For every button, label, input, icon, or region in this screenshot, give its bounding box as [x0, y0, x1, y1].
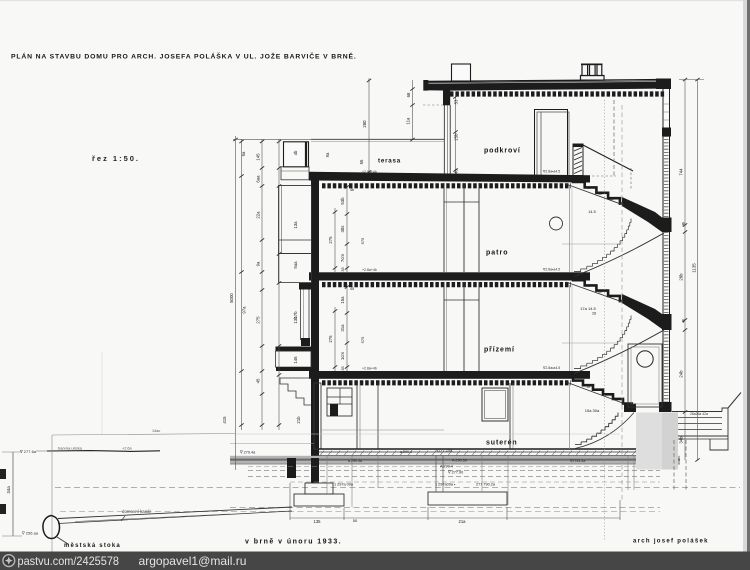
svg-text:∇2.8a•a4.5: ∇2.8a•a4.5: [542, 366, 560, 370]
svg-text:+2.8a+4b: +2.8a+4b: [362, 367, 377, 371]
svg-text:a 290.4: a 290.4: [400, 450, 412, 454]
svg-text:415: 415: [222, 416, 227, 424]
svg-text:1cm: 1cm: [340, 352, 345, 361]
svg-text:domovní kanál: domovní kanál: [122, 509, 151, 514]
svg-text:275: 275: [328, 236, 333, 244]
svg-text:A 290.4: A 290.4: [440, 465, 453, 469]
svg-text:1135: 1135: [692, 263, 697, 273]
svg-text:7cm: 7cm: [340, 254, 345, 263]
svg-text:45: 45: [256, 378, 261, 383]
svg-text:4b: 4b: [454, 169, 459, 174]
svg-text:+2.8a+4b: +2.8a+4b: [362, 268, 377, 272]
svg-text:13a: 13a: [293, 221, 298, 229]
svg-text:přízemí: přízemí: [484, 347, 515, 354]
svg-text:5000: 5000: [229, 293, 234, 303]
svg-text:A 290.50: A 290.50: [452, 459, 467, 463]
svg-text:∇277.20a: ∇277.20a: [435, 449, 453, 453]
svg-text:97a: 97a: [242, 306, 247, 314]
svg-text:PLÁN NA STAVBU DOMU PRO ARCH.: PLÁN NA STAVBU DOMU PRO ARCH. JOSEFA POL…: [11, 52, 357, 61]
svg-text:řez 1:50.: řez 1:50.: [92, 154, 140, 163]
svg-text:34a: 34a: [6, 486, 11, 494]
svg-text:68: 68: [406, 92, 411, 97]
svg-text:9a: 9a: [256, 261, 261, 266]
svg-text:a 290.4a: a 290.4a: [348, 459, 362, 463]
svg-text:terasa: terasa: [378, 158, 401, 165]
svg-text:744: 744: [679, 168, 684, 176]
svg-text:∇2.8a•a4.5: ∇2.8a•a4.5: [542, 170, 560, 174]
svg-text:50: 50: [353, 518, 358, 523]
svg-text:∇2.8a•a4.5: ∇2.8a•a4.5: [542, 268, 560, 272]
svg-text:arch josef polášek: arch josef polášek: [633, 539, 709, 545]
svg-text:14.5: 14.5: [588, 210, 595, 214]
svg-text:4b: 4b: [681, 318, 686, 323]
svg-text:9a: 9a: [241, 151, 246, 156]
svg-text:4b: 4b: [586, 186, 590, 190]
svg-text:1 297a 09a: 1 297a 09a: [334, 483, 354, 487]
svg-text:135: 135: [314, 519, 322, 524]
svg-text:pastvu.com/2425578: pastvu.com/2425578: [18, 554, 120, 568]
svg-text:146: 146: [293, 356, 298, 364]
svg-text:17a 14.5: 17a 14.5: [580, 306, 596, 311]
svg-text:patro: patro: [486, 250, 509, 257]
svg-text:barvna ulícka: barvna ulícka: [58, 446, 83, 451]
svg-text:11a: 11a: [406, 117, 411, 124]
svg-text:31a: 31a: [340, 324, 345, 332]
svg-text:∇ 277.6a: ∇ 277.6a: [19, 449, 37, 454]
svg-text:35: 35: [341, 267, 345, 271]
svg-text:v brně v únoru 1933.: v brně v únoru 1933.: [245, 539, 342, 546]
svg-text:6aa: 6aa: [256, 175, 261, 183]
svg-text:575: 575: [360, 336, 365, 343]
svg-text:277 790.2a: 277 790.2a: [476, 483, 496, 487]
svg-text:4b: 4b: [598, 290, 602, 294]
svg-text:575: 575: [360, 237, 365, 244]
svg-text:25b: 25b: [454, 133, 459, 141]
svg-text:24b: 24b: [679, 370, 684, 378]
svg-text:275: 275: [328, 335, 333, 343]
svg-text:∇2744.4a: ∇2744.4a: [569, 459, 585, 463]
svg-text:9a: 9a: [325, 152, 330, 157]
svg-text:4b: 4b: [293, 150, 298, 155]
svg-text:21a: 21a: [459, 519, 467, 524]
svg-text:1b: 1b: [610, 197, 614, 201]
svg-text:145: 145: [256, 153, 261, 161]
svg-text:53b: 53b: [340, 197, 345, 205]
svg-text:9aa: 9aa: [293, 261, 298, 269]
svg-text:21b: 21b: [296, 416, 301, 424]
svg-text:28b: 28b: [679, 273, 684, 281]
svg-text:280: 280: [362, 120, 367, 128]
svg-text:1 297a09a •: 1 297a09a •: [435, 483, 456, 487]
svg-text:45: 45: [350, 287, 354, 291]
svg-text:13b: 13b: [293, 316, 298, 324]
svg-text:15a: 15a: [340, 296, 345, 304]
svg-text:městská stoka: městská stoka: [64, 543, 121, 549]
svg-text:4b: 4b: [681, 221, 686, 226]
svg-text:30s: 30s: [340, 226, 345, 233]
svg-text:4b: 4b: [586, 284, 590, 288]
svg-text:∇ 256.aa: ∇ 256.aa: [21, 531, 39, 536]
svg-text:53: 53: [454, 99, 459, 104]
svg-text:55: 55: [359, 159, 364, 164]
svg-text:28: 28: [592, 312, 596, 316]
svg-text:34b: 34b: [679, 436, 684, 444]
svg-text:14ac: 14ac: [152, 429, 160, 433]
svg-text:+2.6a: +2.6a: [122, 447, 132, 451]
svg-text:275: 275: [256, 316, 261, 324]
svg-text:podkroví: podkroví: [484, 148, 521, 155]
svg-text:4b: 4b: [350, 188, 354, 192]
svg-text:15a 30a: 15a 30a: [585, 408, 600, 413]
svg-text:28a26a 42a: 28a26a 42a: [690, 412, 708, 416]
svg-text:4b: 4b: [598, 192, 602, 196]
svg-text:∇ 277.90: ∇ 277.90: [447, 471, 463, 475]
svg-text:1a: 1a: [586, 385, 590, 389]
svg-text:∇ 279.4a: ∇ 279.4a: [239, 451, 256, 455]
svg-text:argopavel1@mail.ru: argopavel1@mail.ru: [139, 554, 247, 568]
svg-text:35: 35: [341, 366, 345, 370]
svg-text:22a: 22a: [256, 211, 261, 219]
